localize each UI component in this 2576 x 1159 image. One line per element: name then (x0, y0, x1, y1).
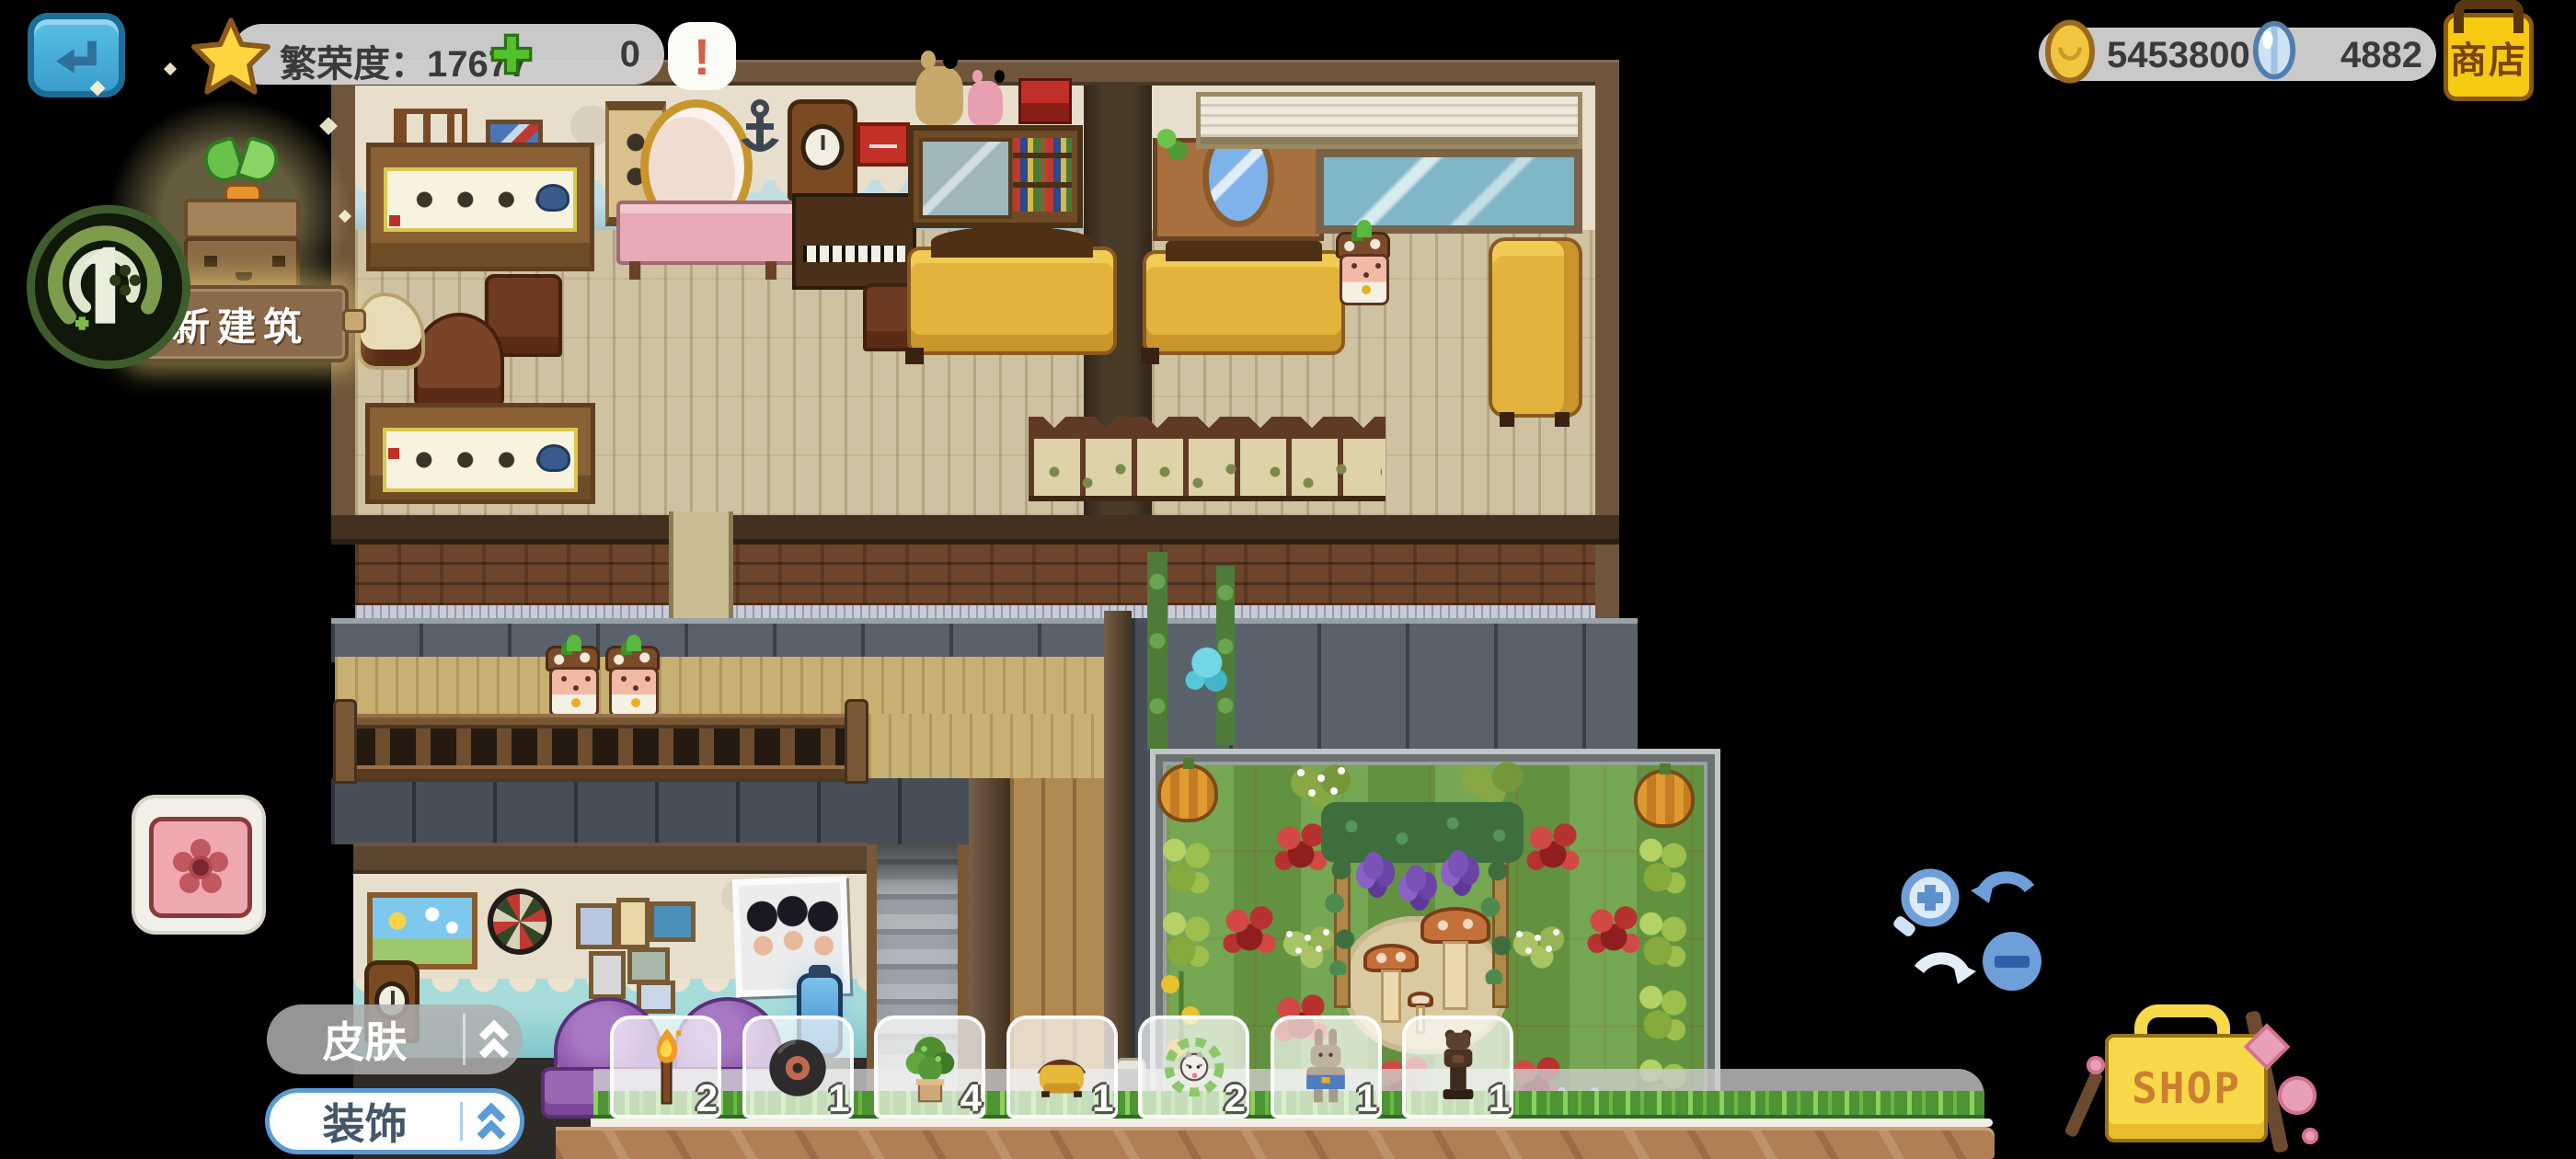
folding-screen[interactable] (1029, 437, 1386, 501)
tray-slot-vinyl-record[interactable]: 1 (742, 1016, 854, 1119)
corner-couch-yellow[interactable] (1489, 237, 1582, 418)
cat-wreath-icon (1160, 1025, 1228, 1109)
rotate-left-button[interactable] (1967, 861, 2042, 922)
flower-icon (149, 817, 252, 918)
coin-amount: 5453800 (2107, 35, 2250, 76)
window-blinds (1196, 92, 1582, 149)
zoom-out-icon (1976, 925, 2048, 997)
pepper-plant[interactable] (1157, 830, 1214, 898)
blossom (2302, 1128, 2318, 1144)
blue-rose[interactable] (1180, 635, 1239, 705)
pepper-plant[interactable] (1157, 903, 1214, 971)
balcony-wall-right (868, 714, 1141, 778)
cow-mascot-upper[interactable] (1335, 232, 1394, 305)
item-count: 1 (828, 1076, 849, 1120)
balcony-wall (335, 657, 1141, 716)
wood-shelf (556, 1127, 1995, 1159)
new-building-label: 新建筑 (171, 296, 309, 352)
tray-slot-yellow-sofa[interactable]: 1 (1006, 1016, 1118, 1119)
torch-icon (632, 1025, 700, 1109)
decorate-button-label: 装饰 (270, 1091, 460, 1152)
tray-slot-torch[interactable]: 2 (610, 1016, 721, 1119)
cow-mascot-balcony-2[interactable] (604, 646, 663, 717)
rotate-left-icon (1967, 861, 2042, 922)
balcony-newel-right (845, 699, 868, 784)
tray-slot-potted-plant[interactable]: 4 (874, 1016, 985, 1119)
gem-amount: 4882 (2340, 35, 2422, 76)
coin-icon (2042, 18, 2098, 88)
balcony-newel-left (333, 699, 357, 784)
sprout-box-character-icon (182, 138, 304, 293)
shop-button-label: 商店 (2450, 30, 2527, 84)
teddy-bear-tan[interactable] (915, 66, 963, 125)
hanging-vine-1[interactable] (1147, 552, 1167, 750)
zoom-in-icon (1884, 863, 1967, 951)
tray-slot-cat-wreath[interactable]: 2 (1138, 1016, 1249, 1119)
rotate-right-button[interactable] (1908, 940, 1978, 1004)
pepper-plant[interactable] (1634, 830, 1691, 898)
potted-plant-icon (896, 1025, 964, 1109)
item-count: 4 (960, 1076, 982, 1120)
yellow-sofa-icon (1028, 1025, 1096, 1109)
wooden-vanity-dresser[interactable] (1153, 138, 1324, 241)
zoom-out-button[interactable] (1976, 925, 2048, 997)
pumpkin-right[interactable] (1634, 769, 1695, 828)
zoom-in-button[interactable] (1884, 863, 1967, 951)
lower-room-header (353, 843, 867, 874)
shop-toolbox-button[interactable]: SHOP (2070, 1004, 2346, 1159)
grandfather-clock[interactable] (788, 99, 857, 201)
stone-coping (355, 605, 1595, 618)
blossom (2278, 1076, 2317, 1115)
round-back-chair[interactable] (414, 313, 504, 408)
rabbit-figure-icon (1292, 1025, 1360, 1109)
bear-figure-icon (1424, 1025, 1492, 1109)
teddy-bear-pink[interactable] (968, 81, 1003, 125)
skin-button-label: 皮肤 (267, 1009, 463, 1070)
game-screen: { "window": {"width": 2800, "height": 12… (0, 0, 2576, 1159)
slate-wall-band (331, 618, 1141, 662)
grape-cluster (1448, 850, 1468, 878)
dartboard[interactable] (488, 889, 552, 955)
gamepad-overlay-icon[interactable] (26, 204, 191, 370)
glass-window (1316, 149, 1582, 234)
cow-mascot-balcony-1[interactable] (545, 646, 604, 717)
grape-trellis[interactable] (1321, 802, 1524, 863)
currency-bar: 5453800 4882 (2039, 28, 2436, 81)
flower-button[interactable] (132, 795, 266, 935)
double-chevron-up-icon (463, 1100, 520, 1142)
gem-icon (2250, 18, 2298, 88)
pumpkin-left[interactable] (1157, 763, 1218, 822)
balcony-rail-bottom (335, 765, 868, 782)
blossom (2087, 1056, 2105, 1074)
calligraphy-desk-2[interactable] (365, 403, 595, 504)
tray-slot-bear-figure[interactable]: 1 (1402, 1016, 1513, 1119)
double-chevron-up-icon (466, 1017, 523, 1061)
trellis-vine-left (1325, 855, 1358, 975)
green-bush[interactable] (1450, 751, 1538, 809)
rose-bush[interactable] (1581, 900, 1647, 960)
photo-frame-cluster[interactable] (576, 898, 696, 1001)
tray-slot-rabbit-figure[interactable]: 1 (1271, 1016, 1382, 1119)
decorate-button[interactable]: 装饰 (265, 1088, 524, 1154)
floor-divider-beam (331, 515, 1619, 545)
yellow-sofa-left[interactable] (907, 247, 1117, 355)
item-count: 1 (1092, 1076, 1113, 1120)
item-count: 1 (1356, 1076, 1377, 1120)
vinyl-record-icon (764, 1025, 832, 1109)
red-book-stack[interactable] (1018, 78, 1072, 124)
item-count: 2 (696, 1076, 718, 1120)
house-scene (0, 0, 2576, 1159)
plus-icon[interactable] (489, 32, 534, 76)
grape-cluster (1363, 852, 1384, 879)
shop-box-label: SHOP (2132, 1063, 2241, 1113)
prosperity-pending: 0 (620, 34, 640, 75)
exclamation-icon[interactable]: ! (668, 22, 736, 90)
yellow-sofa-right[interactable] (1143, 250, 1345, 355)
red-cabinet-poster[interactable] (857, 122, 910, 166)
grape-cluster (1406, 865, 1426, 892)
calligraphy-desk-1[interactable] (366, 143, 594, 271)
landscape-painting[interactable] (367, 892, 477, 970)
shop-button[interactable]: 商店 (2444, 13, 2534, 101)
item-count: 2 (1225, 1076, 1246, 1120)
rotate-right-icon (1908, 940, 1978, 1004)
sign-latch (342, 309, 366, 333)
skin-button[interactable]: 皮肤 (267, 1004, 523, 1074)
balcony-rail-top (335, 714, 868, 729)
branch-decor (2064, 1069, 2104, 1138)
balcony-balusters (335, 729, 868, 765)
rose-bush[interactable] (1520, 817, 1586, 878)
brick-band (355, 545, 1595, 605)
upright-piano[interactable] (792, 193, 916, 290)
bookshelf[interactable] (908, 125, 1083, 228)
pepper-plant[interactable] (1634, 977, 1691, 1045)
item-count: 1 (1489, 1076, 1510, 1120)
anchor-decor[interactable] (735, 99, 785, 164)
tray-highlight-line (591, 1119, 1993, 1127)
